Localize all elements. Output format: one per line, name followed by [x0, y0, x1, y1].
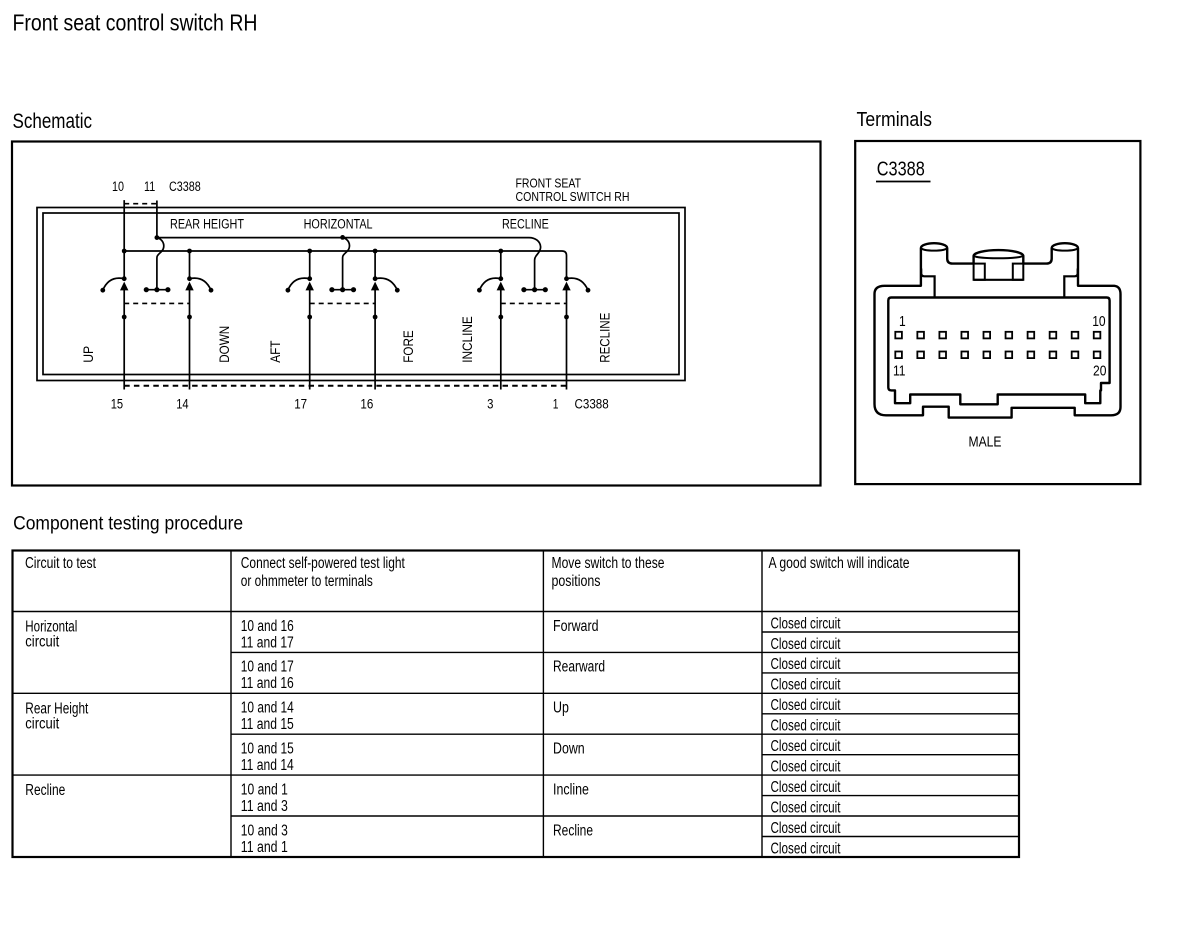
- svg-text:MALE: MALE: [969, 434, 1002, 450]
- svg-text:1: 1: [899, 313, 906, 330]
- svg-text:17: 17: [294, 397, 307, 413]
- svg-text:C3388: C3388: [877, 159, 925, 181]
- svg-text:Component testing procedure: Component testing procedure: [13, 514, 243, 535]
- svg-text:Closed circuit: Closed circuit: [771, 759, 842, 776]
- svg-text:INCLINE: INCLINE: [460, 316, 476, 363]
- svg-text:Schematic: Schematic: [13, 109, 93, 133]
- svg-text:10 and 14: 10 and 14: [241, 700, 294, 717]
- svg-text:FORE: FORE: [401, 330, 417, 363]
- svg-text:10: 10: [1092, 313, 1105, 330]
- svg-text:10 and 1: 10 and 1: [241, 781, 288, 798]
- svg-text:3: 3: [487, 397, 493, 413]
- svg-text:Terminals: Terminals: [857, 108, 933, 131]
- svg-text:10: 10: [112, 179, 124, 194]
- svg-text:Closed circuit: Closed circuit: [771, 718, 842, 735]
- svg-text:positions: positions: [552, 573, 601, 590]
- svg-text:Move switch to these: Move switch to these: [552, 555, 665, 572]
- svg-text:circuit: circuit: [25, 715, 60, 732]
- svg-text:11: 11: [144, 179, 155, 194]
- svg-text:Forward: Forward: [553, 618, 599, 635]
- svg-text:Circuit to test: Circuit to test: [25, 555, 97, 572]
- svg-text:AFT: AFT: [268, 340, 284, 363]
- svg-text:14: 14: [176, 397, 188, 413]
- svg-text:circuit: circuit: [25, 634, 60, 651]
- svg-text:Closed circuit: Closed circuit: [771, 677, 842, 694]
- svg-text:10 and 16: 10 and 16: [241, 618, 294, 635]
- svg-text:Closed circuit: Closed circuit: [771, 656, 842, 673]
- svg-text:11 and 14: 11 and 14: [241, 757, 294, 774]
- svg-text:Closed circuit: Closed circuit: [771, 799, 842, 816]
- svg-text:Down: Down: [553, 741, 585, 758]
- svg-text:RECLINE: RECLINE: [502, 217, 549, 232]
- svg-text:Closed circuit: Closed circuit: [771, 636, 842, 653]
- svg-text:Rearward: Rearward: [553, 659, 605, 676]
- svg-text:20: 20: [1093, 363, 1106, 380]
- svg-text:Closed circuit: Closed circuit: [771, 779, 842, 796]
- svg-text:Closed circuit: Closed circuit: [771, 615, 842, 632]
- svg-text:10 and 17: 10 and 17: [241, 659, 294, 676]
- svg-text:A good switch will indicate: A good switch will indicate: [769, 555, 910, 572]
- svg-text:HORIZONTAL: HORIZONTAL: [304, 217, 373, 232]
- svg-text:15: 15: [111, 397, 123, 413]
- svg-text:Closed circuit: Closed circuit: [771, 697, 842, 714]
- svg-text:Front seat control switch RH: Front seat control switch RH: [13, 10, 258, 36]
- svg-text:Closed circuit: Closed circuit: [771, 738, 842, 755]
- svg-text:RECLINE: RECLINE: [598, 313, 614, 363]
- svg-text:10 and 3: 10 and 3: [241, 822, 288, 839]
- svg-text:11 and 3: 11 and 3: [241, 798, 288, 815]
- svg-text:Closed circuit: Closed circuit: [771, 820, 842, 837]
- svg-text:C3388: C3388: [575, 397, 609, 413]
- svg-text:CONTROL SWITCH RH: CONTROL SWITCH RH: [516, 189, 630, 204]
- svg-text:11 and 16: 11 and 16: [241, 675, 294, 692]
- svg-text:DOWN: DOWN: [217, 326, 233, 363]
- svg-text:11: 11: [893, 363, 906, 380]
- svg-text:Connect self-powered test ligh: Connect self-powered test light: [241, 555, 406, 572]
- svg-text:Closed circuit: Closed circuit: [771, 840, 842, 857]
- svg-text:10 and 15: 10 and 15: [241, 741, 294, 758]
- svg-text:C3388: C3388: [169, 179, 201, 194]
- svg-text:16: 16: [360, 397, 373, 413]
- svg-text:or ohmmeter to terminals: or ohmmeter to terminals: [241, 573, 373, 590]
- svg-text:REAR HEIGHT: REAR HEIGHT: [170, 217, 244, 232]
- svg-text:11 and 1: 11 and 1: [241, 839, 288, 856]
- svg-text:1: 1: [553, 397, 559, 413]
- svg-text:11 and 15: 11 and 15: [241, 716, 294, 733]
- svg-text:Incline: Incline: [553, 781, 589, 798]
- svg-text:UP: UP: [81, 346, 97, 363]
- svg-text:Recline: Recline: [25, 782, 65, 799]
- svg-text:11 and 17: 11 and 17: [241, 634, 294, 651]
- svg-text:Up: Up: [553, 700, 569, 717]
- svg-text:Recline: Recline: [553, 822, 593, 839]
